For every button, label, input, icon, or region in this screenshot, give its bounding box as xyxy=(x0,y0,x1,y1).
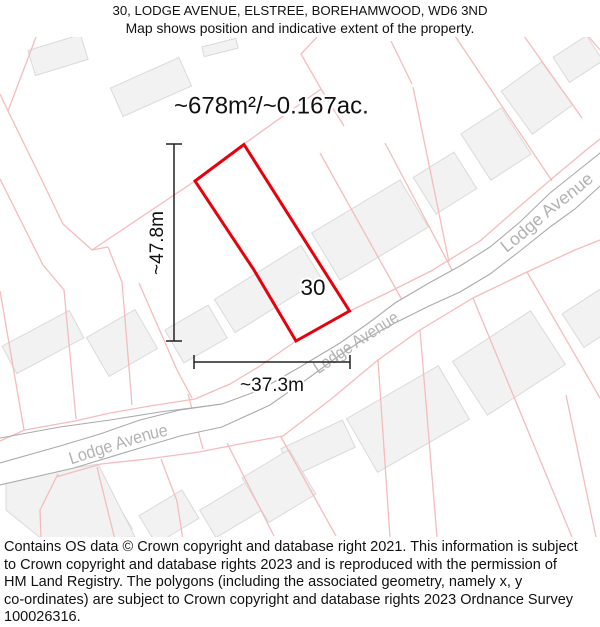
svg-text:Lodge Avenue: Lodge Avenue xyxy=(496,168,596,256)
svg-text:~37.3m: ~37.3m xyxy=(240,375,304,396)
svg-text:30: 30 xyxy=(300,275,325,300)
svg-text:Lodge Avenue: Lodge Avenue xyxy=(309,307,402,378)
svg-text:~678m²/~0.167ac.: ~678m²/~0.167ac. xyxy=(174,93,369,120)
svg-text:~47.8m: ~47.8m xyxy=(147,211,168,275)
